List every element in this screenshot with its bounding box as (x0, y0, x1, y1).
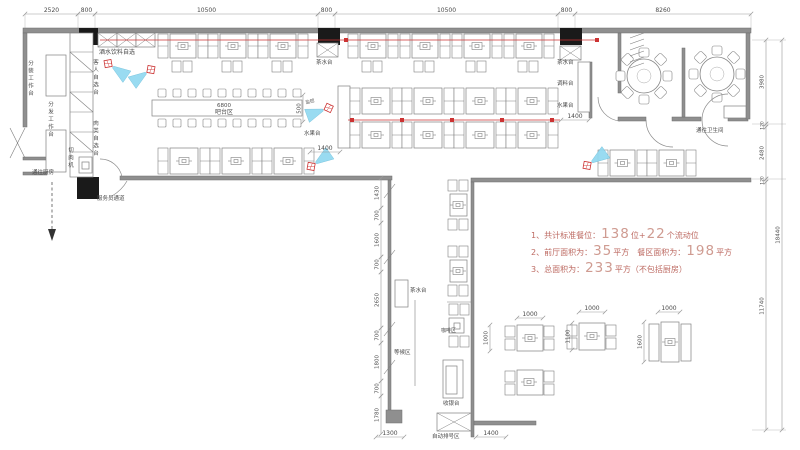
label-distribution-station: 分发工作台 (47, 100, 54, 139)
note-number: 233 (584, 260, 615, 276)
chair (544, 384, 554, 395)
chair (222, 61, 231, 72)
hotpot-cooker-core (456, 270, 460, 273)
hotpot-cooker-core (374, 100, 378, 103)
dim-label: 2650 (375, 293, 381, 307)
chair (414, 61, 423, 72)
chair (459, 219, 468, 230)
power-outlet (350, 118, 354, 122)
counter-or-table (70, 33, 93, 177)
power-outlet (450, 118, 454, 122)
chair (425, 61, 434, 72)
power-outlet (344, 38, 348, 42)
label-drinks-self-service: 酒水饮料自选 (99, 48, 135, 56)
dim-label: 1000 (661, 305, 676, 312)
label-fruit-station-2: 水果台 (557, 101, 574, 109)
note-line-2: 2、前厅面积为：35平方 餐区面积为：198平方 (531, 243, 732, 260)
counter-or-table (578, 62, 590, 112)
label-coffee-area: 咖啡区 (441, 327, 456, 334)
hotpot-cooker-core (670, 162, 674, 165)
chair (663, 71, 672, 81)
dim-label: 1100 (566, 329, 572, 343)
chair (712, 46, 722, 55)
wall (23, 157, 47, 160)
stool (158, 89, 166, 97)
wall (471, 182, 474, 437)
chair (712, 93, 722, 102)
column (318, 28, 340, 45)
camera-cone (128, 67, 150, 88)
stool (263, 89, 271, 97)
wall (618, 117, 646, 121)
chair (172, 61, 181, 72)
note-line-1: 1、共计标准餐位：138位+22个流动位 (531, 226, 732, 243)
camera-cone (305, 103, 326, 122)
note-text: 平方 (716, 248, 732, 257)
label-waiting-area: 等候区 (394, 348, 411, 356)
wall (386, 410, 402, 423)
dim-label: 11740 (760, 297, 766, 315)
wall (618, 33, 621, 93)
dim-label: 1400 (483, 430, 498, 437)
hotpot-cooker-core (527, 45, 531, 48)
note-text: 位+ (631, 231, 646, 240)
stool (278, 89, 286, 97)
label-to-kitchen: 通往厨房 (32, 168, 55, 176)
chair (448, 246, 457, 257)
chair (606, 338, 616, 349)
chair (233, 61, 242, 72)
door-arc (100, 159, 122, 177)
dim-label: 1800 (375, 355, 381, 369)
power-outlet (550, 118, 554, 122)
stool (188, 89, 196, 97)
label-tea-station-3: 茶水台 (410, 286, 427, 294)
chair (459, 180, 468, 191)
label-tea-station-2: 茶水台 (557, 58, 574, 66)
hotpot-cooker-core (426, 134, 430, 137)
door-arc (646, 120, 673, 147)
hotpot-cooker-core (530, 100, 534, 103)
note-number: 198 (685, 243, 716, 259)
hotpot-cooker-core (374, 134, 378, 137)
floor-plan-drawing: 2520800105008001050080082601400140014001… (0, 0, 800, 450)
dim-label: 700 (375, 259, 381, 270)
stool (293, 119, 301, 127)
chair (448, 219, 457, 230)
hotpot-cooker-core (530, 134, 534, 137)
dim-label: 1000 (522, 311, 537, 318)
chair (272, 61, 281, 72)
chair (459, 246, 468, 257)
hotpot-cooker-core (281, 45, 285, 48)
hotpot-cooker-core (478, 100, 482, 103)
note-text: 平方 餐区面积为： (613, 248, 685, 257)
wall (474, 421, 536, 425)
detail-line (630, 33, 644, 38)
note-text: 个流动位 (667, 231, 699, 240)
chair (518, 61, 527, 72)
dim-label: 10500 (437, 7, 456, 14)
dim-label: 700 (375, 330, 381, 341)
dim-label: 700 (375, 383, 381, 394)
wall (746, 33, 750, 119)
label-guest-self-select: 客人自选台 (92, 58, 99, 97)
dim-label: 1000 (484, 331, 490, 345)
chair (689, 69, 698, 79)
dim-label: 800 (561, 7, 573, 14)
stool (203, 119, 211, 127)
hotpot-cooker-core (231, 45, 235, 48)
chair (639, 95, 649, 104)
hotpot-cooker-core (528, 337, 532, 340)
chair (505, 326, 515, 337)
hotpot-cooker-core (475, 45, 479, 48)
counter-or-table (82, 162, 89, 169)
chair (460, 336, 469, 347)
hotpot-cooker-core (423, 45, 427, 48)
note-number: 22 (646, 226, 667, 242)
stool (173, 119, 181, 127)
dim-label: 1780 (375, 408, 381, 422)
detail-line (630, 39, 644, 44)
label-cashier: 收银台 (443, 399, 460, 407)
dim-label: 1400 (567, 113, 582, 120)
chair (606, 325, 616, 336)
dim-label: 1300 (382, 430, 397, 437)
camera-cone (109, 61, 131, 82)
chair (544, 339, 554, 350)
stool (188, 119, 196, 127)
stool (233, 119, 241, 127)
dim-label: 8260 (655, 7, 670, 14)
chair (477, 61, 486, 72)
stool (203, 89, 211, 97)
chair (362, 61, 371, 72)
stool (173, 89, 181, 97)
cctv-camera-icon (100, 55, 131, 83)
wall (471, 178, 751, 182)
label-queue-number-area: 自动排号区 (432, 432, 460, 440)
chair (448, 285, 457, 296)
stool (248, 119, 256, 127)
dim-label: 1400 (317, 145, 332, 152)
column (77, 177, 99, 199)
chair (466, 61, 475, 72)
stool (218, 119, 226, 127)
power-outlet (400, 118, 404, 122)
dim-label: 1600 (638, 335, 644, 349)
label-bar-area: 吧台区 (215, 108, 233, 116)
chair (616, 71, 625, 81)
note-text: 2、前厅面积为： (531, 248, 592, 257)
label-tea-station-1: 茶水台 (316, 58, 333, 66)
chair (449, 336, 458, 347)
hotpot-cooker-core (234, 160, 238, 163)
dim-label: 18440 (776, 226, 782, 244)
chair (544, 326, 554, 337)
chair (736, 69, 745, 79)
dim-label: 1430 (375, 186, 381, 200)
chair (448, 180, 457, 191)
label-meat-slicer: 切肉机 (67, 147, 74, 170)
power-outlet (595, 38, 599, 42)
wall (23, 28, 751, 33)
hotpot-cooker-core (590, 335, 594, 338)
stool (233, 89, 241, 97)
hotpot-cooker-core (371, 45, 375, 48)
round-table (627, 59, 661, 93)
chair (283, 61, 292, 72)
dim-label: 3980 (760, 75, 766, 89)
hotpot-cooker-core (456, 204, 460, 207)
note-text: 平方（不包括厨房） (615, 265, 687, 274)
hotpot-cooker-core (527, 381, 531, 384)
chair (373, 61, 382, 72)
hotpot-cooker-core (286, 160, 290, 163)
dim-label: 700 (375, 210, 381, 221)
dim-label: 2480 (760, 146, 766, 160)
label-staff-passage: 服务员通道 (97, 194, 125, 202)
note-number: 138 (600, 226, 631, 242)
stool (263, 119, 271, 127)
label-condiment-station: 调料台 (557, 79, 574, 87)
chair (183, 61, 192, 72)
dim-label: 1600 (375, 233, 381, 247)
chair (505, 384, 515, 395)
stool (158, 119, 166, 127)
hotpot-cooker-core (426, 100, 430, 103)
counter-or-table (681, 324, 691, 361)
chair (460, 304, 469, 315)
chair (505, 371, 515, 382)
counter-or-table (446, 366, 457, 394)
dim-label: 800 (321, 7, 333, 14)
stool (293, 89, 301, 97)
stool (248, 89, 256, 97)
dim-label: 10500 (197, 7, 216, 14)
arrow-head (48, 229, 56, 241)
chair (529, 61, 538, 72)
counter-or-table (46, 55, 66, 96)
chair (449, 304, 458, 315)
area-notes: 1、共计标准餐位：138位+22个流动位 2、前厅面积为：35平方 餐区面积为：… (531, 226, 732, 277)
chair (459, 285, 468, 296)
label-packing-station: 分装工作台 (27, 59, 34, 98)
hotpot-cooker-core (621, 162, 625, 165)
dim-label: 500 (297, 103, 303, 114)
stool (218, 89, 226, 97)
hotpot-cooker-core (181, 45, 185, 48)
wall (388, 180, 391, 411)
round-table (700, 57, 734, 91)
column (560, 28, 582, 45)
power-outlet (500, 118, 504, 122)
chair (544, 371, 554, 382)
wall (120, 176, 392, 180)
dim-label: 1000 (584, 305, 599, 312)
floor-plan: 2520800105008001050080082601400140014001… (0, 0, 800, 450)
hotpot-cooker-core (182, 160, 186, 163)
counter-or-table (338, 86, 350, 148)
note-number: 35 (592, 243, 613, 259)
stool (278, 119, 286, 127)
label-to-restroom: 通往卫生间 (696, 126, 724, 134)
door-arc (112, 181, 127, 196)
kitchen-arrow (48, 182, 56, 241)
note-text: 3、总面积为： (531, 265, 584, 274)
wall (672, 117, 701, 121)
chair (505, 339, 515, 350)
door-arc (598, 97, 620, 121)
dim-label: 800 (81, 7, 93, 14)
counter-or-table (395, 280, 408, 307)
label-fruit-station-1: 水果台 (304, 129, 321, 137)
label-cctv: 监控 (305, 97, 316, 106)
counter-or-table (724, 106, 746, 118)
round-tables (616, 46, 745, 104)
note-line-3: 3、总面积为：233平方（不包括厨房） (531, 260, 732, 277)
cctv-camera-icon (128, 61, 159, 89)
note-text: 1、共计标准餐位： (531, 231, 600, 240)
dim-label: 2520 (44, 7, 59, 14)
hotpot-cooker-core (478, 134, 482, 137)
hotpot-cooker-core (668, 341, 672, 344)
label-meat-self-select: 肉类自选台 (92, 119, 99, 158)
wall (682, 48, 685, 117)
counter-or-table (649, 324, 659, 361)
